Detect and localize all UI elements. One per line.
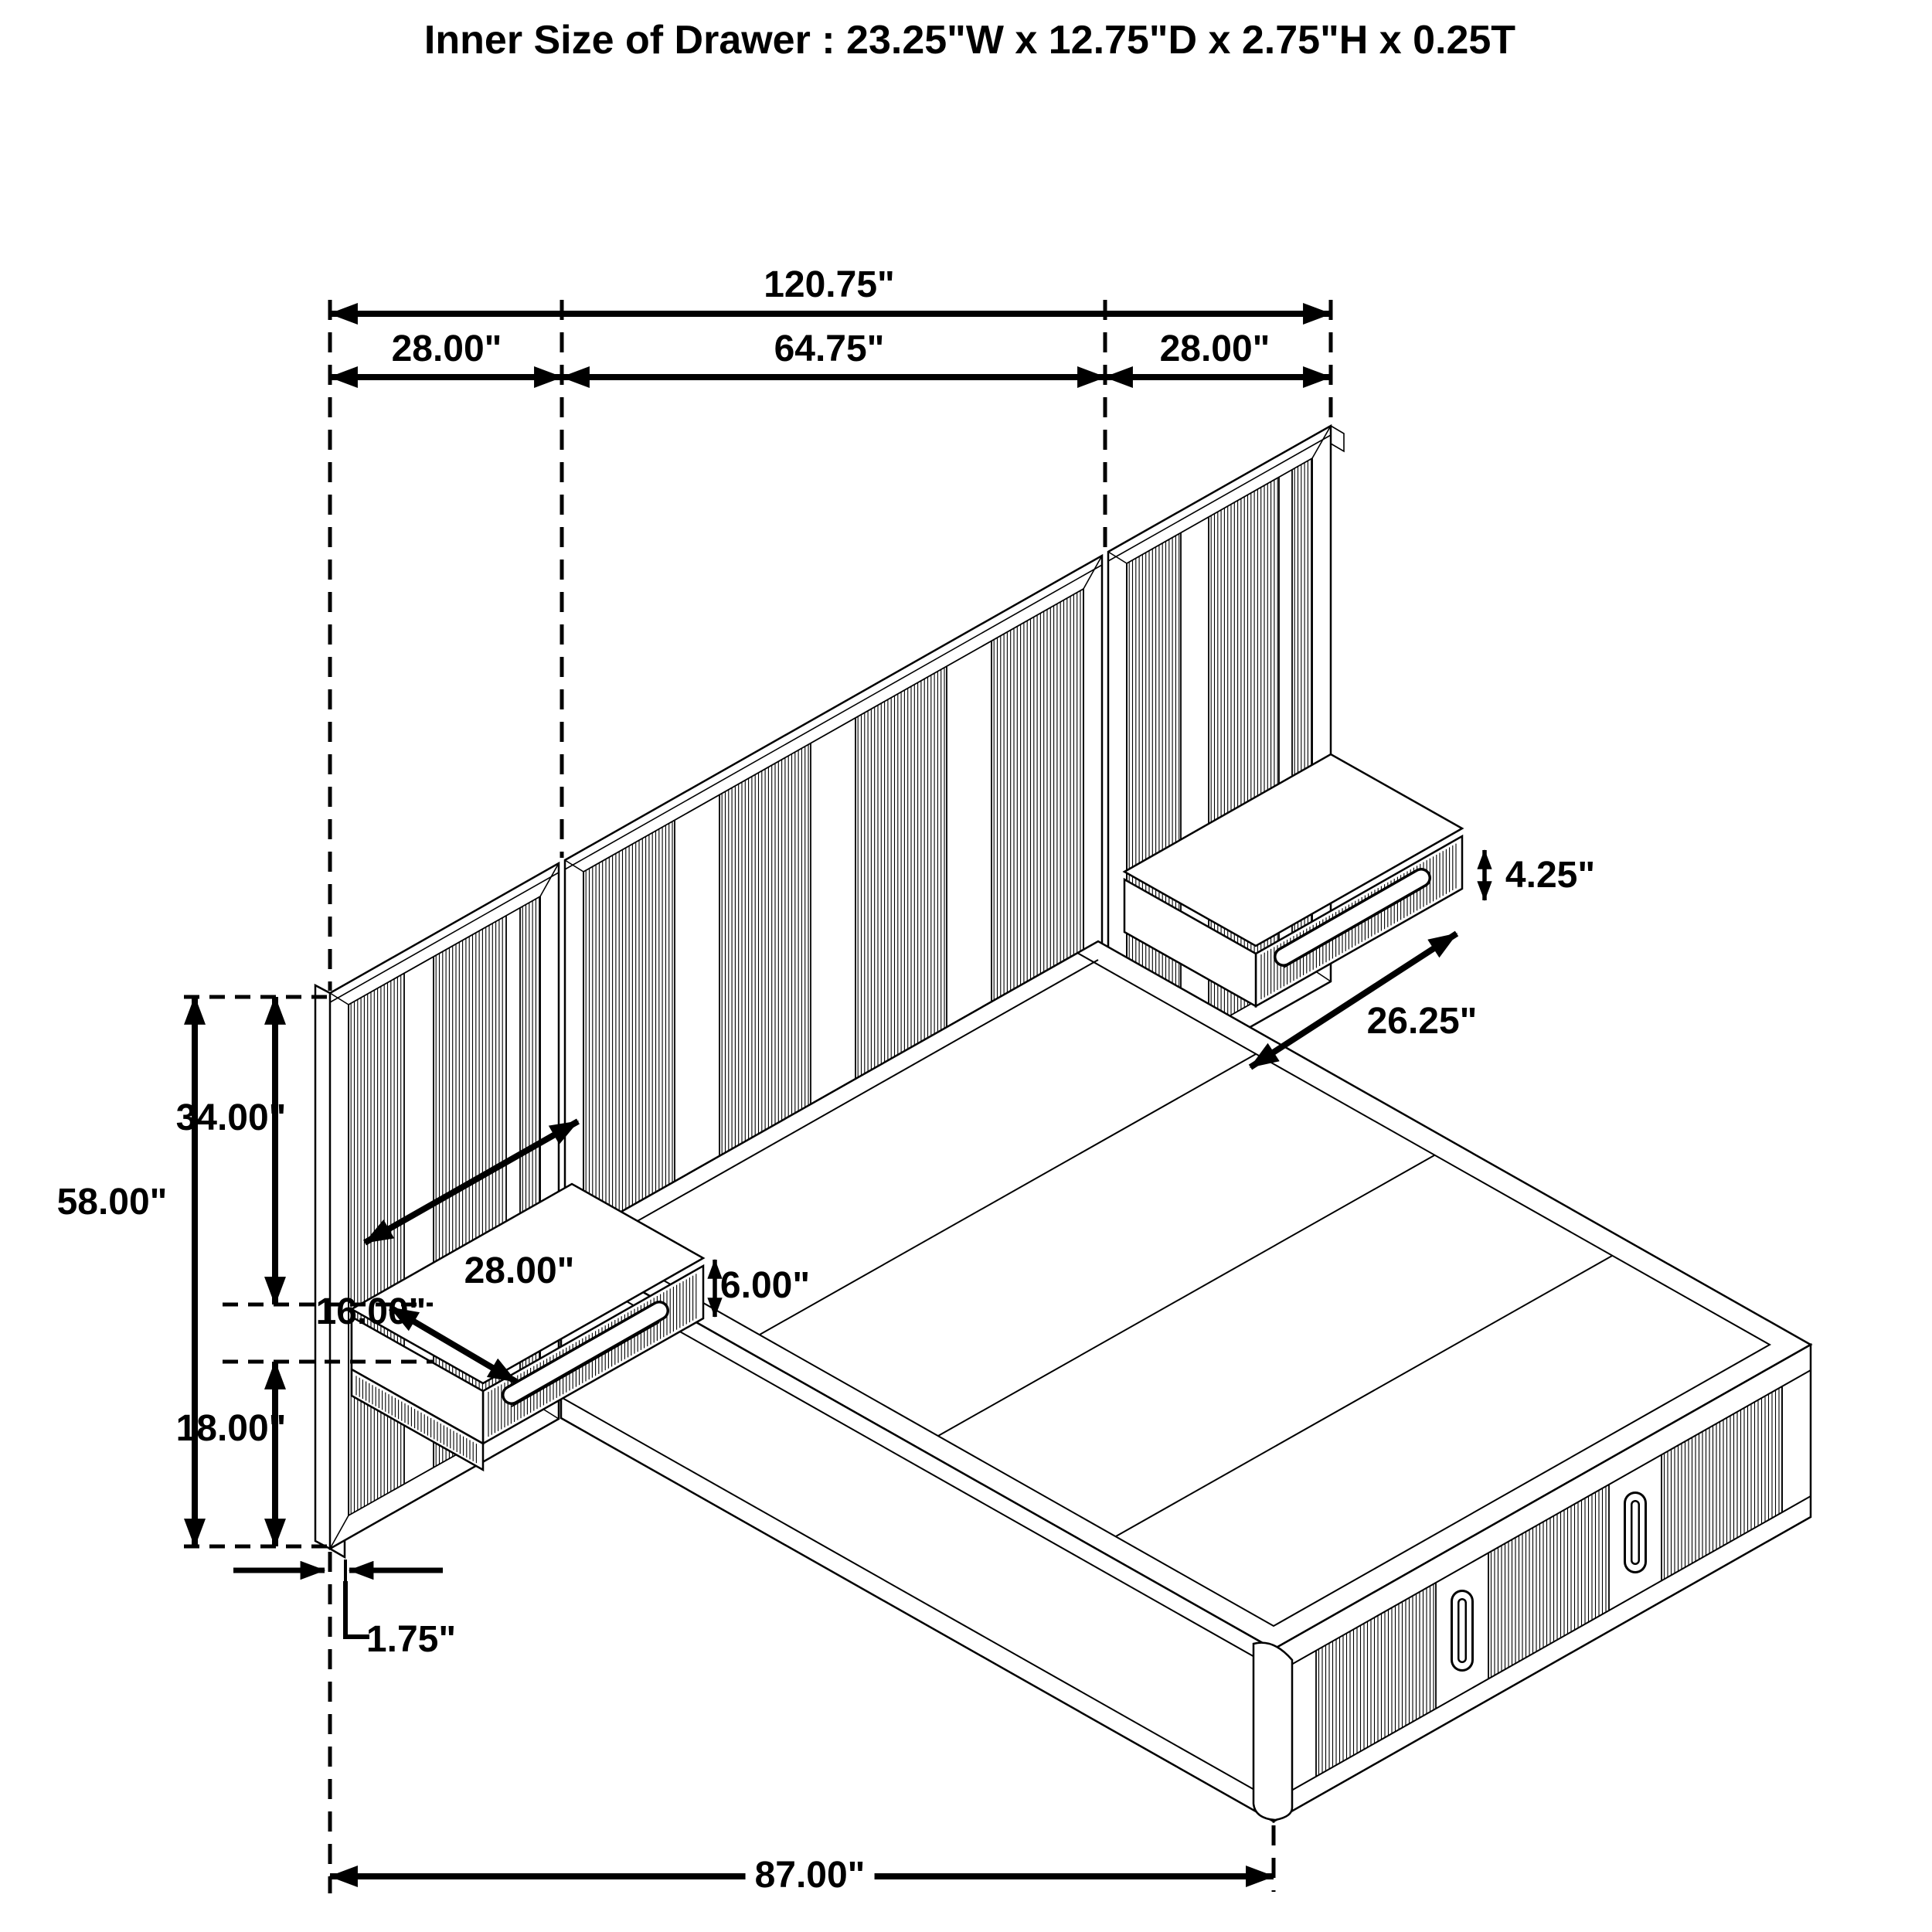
dim-left-panel-width: 28.00" bbox=[392, 331, 502, 368]
bed-corner-post bbox=[1253, 1643, 1292, 1820]
dim-panel-total-height: 58.00" bbox=[57, 1184, 168, 1221]
dim-panel-lower-height: 18.00" bbox=[176, 1410, 287, 1447]
dim-headboard-width: 64.75" bbox=[774, 331, 885, 368]
dim-right-nightstand-height: 4.25" bbox=[1505, 857, 1595, 894]
dim-panel-thickness: 1.75" bbox=[366, 1621, 456, 1658]
dim-right-nightstand-width: 26.25" bbox=[1367, 1003, 1478, 1040]
dim-nightstand-depth: 16.00" bbox=[316, 1294, 427, 1331]
dim-left-nightstand-width: 28.00" bbox=[464, 1253, 575, 1290]
dim-overall-width: 120.75" bbox=[764, 267, 895, 304]
dim-right-panel-width: 28.00" bbox=[1160, 331, 1270, 368]
technical-drawing bbox=[0, 0, 1932, 1932]
dim-panel-upper-height: 34.00" bbox=[176, 1100, 287, 1137]
dim-left-nightstand-height: 6.00" bbox=[720, 1267, 810, 1304]
drawing-title: Inner Size of Drawer : 23.25"W x 12.75"D… bbox=[424, 20, 1515, 60]
dimension-diagram-page: Inner Size of Drawer : 23.25"W x 12.75"D… bbox=[0, 0, 1932, 1932]
dim-bed-length: 87.00" bbox=[746, 1857, 875, 1894]
